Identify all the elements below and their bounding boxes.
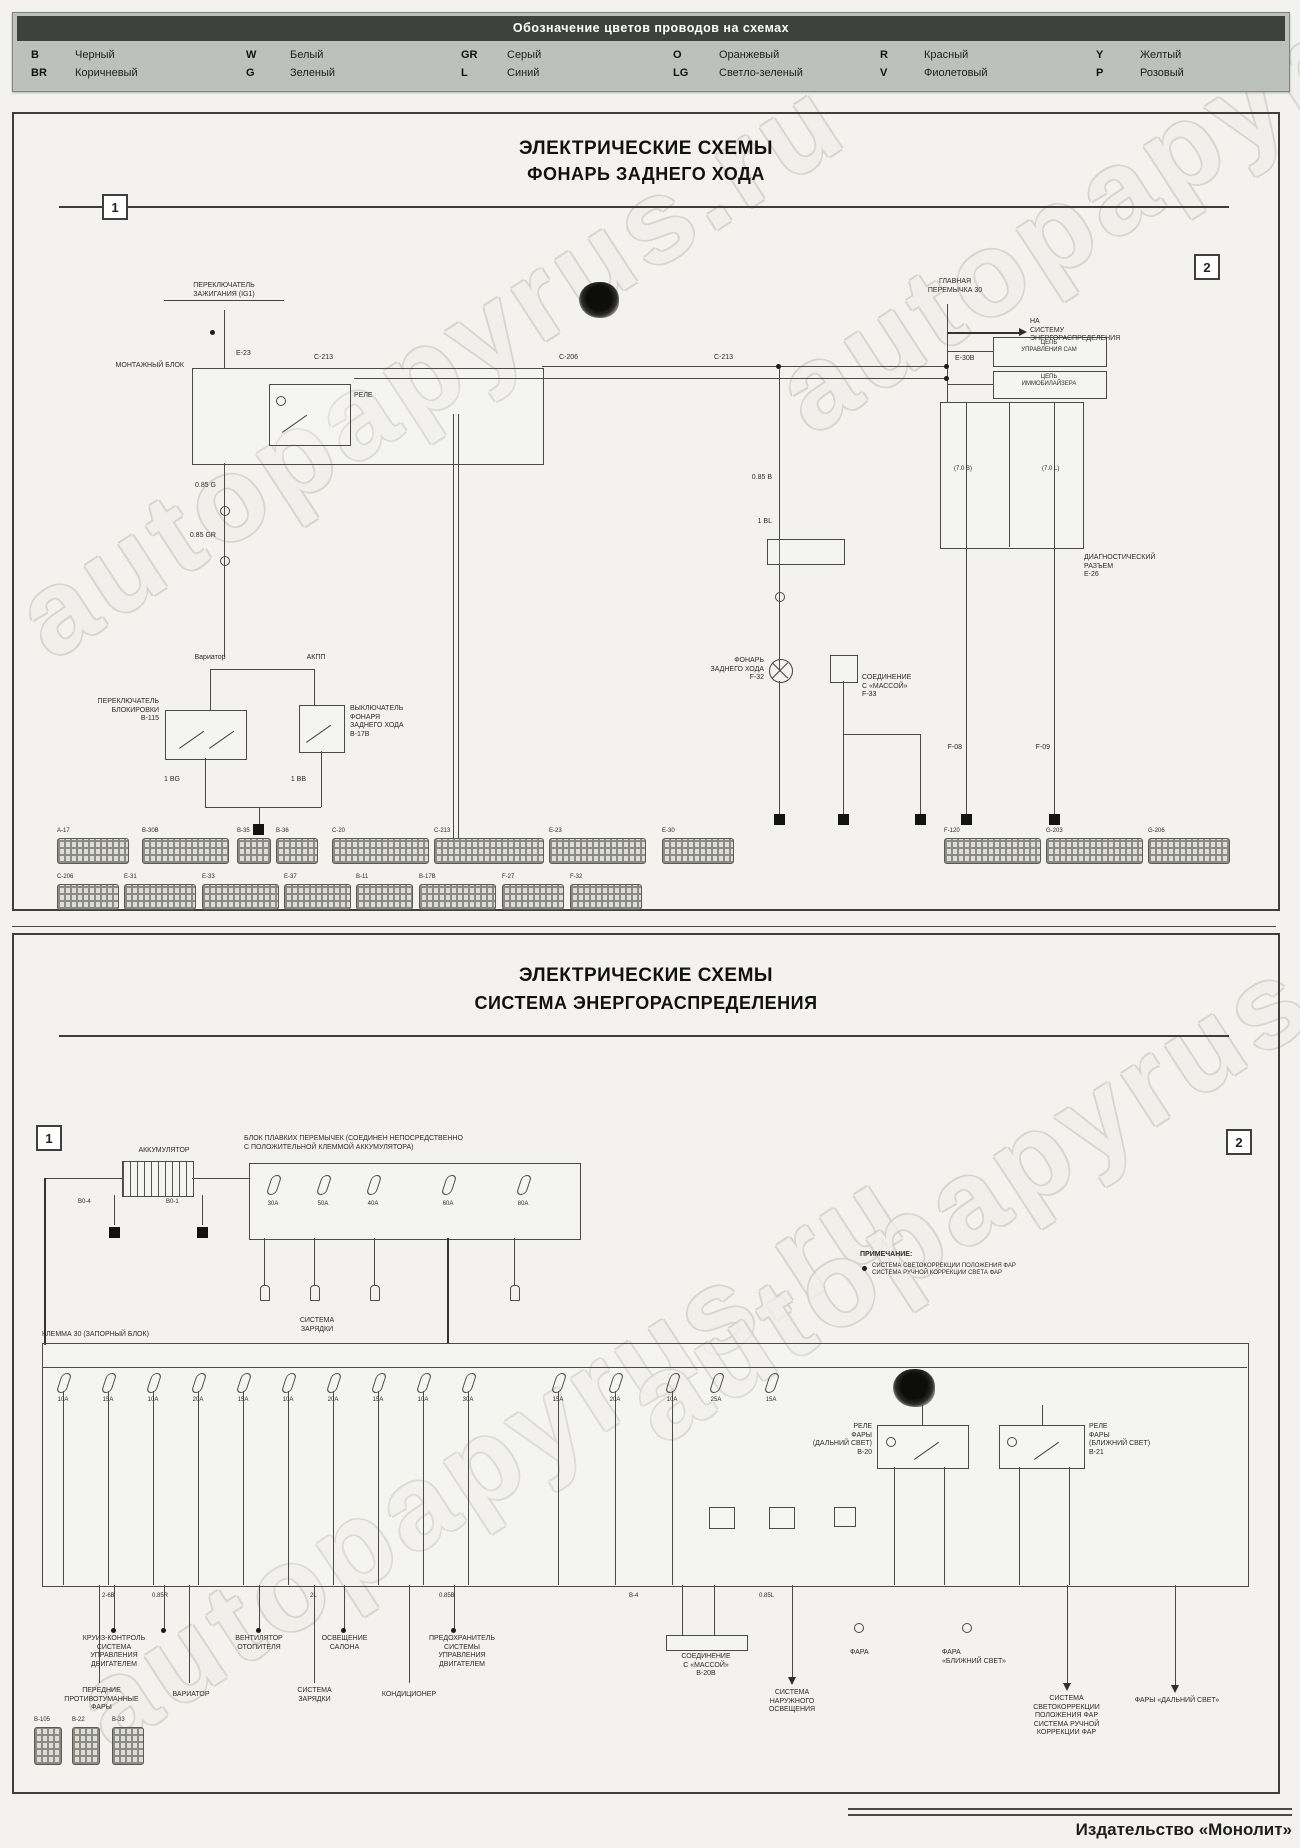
legend-title: Обозначение цветов проводов на схемах — [17, 16, 1285, 41]
wire-line — [409, 1585, 410, 1683]
wire-line — [114, 1585, 115, 1630]
connector-id: E-31 — [124, 874, 137, 881]
wire-line — [259, 807, 260, 824]
dest-label: ОСВЕЩЕНИЕ САЛОНА — [302, 1635, 387, 1652]
wire-code: 1 BG — [140, 776, 180, 785]
fuse-amp: 20A — [319, 1397, 347, 1404]
arrow-down-icon — [1171, 1685, 1179, 1693]
wire-code: (7.0 L) — [1042, 466, 1059, 473]
title-rule — [59, 1035, 1229, 1037]
fuse-amp: 15A — [757, 1397, 785, 1404]
wire-line — [1069, 1467, 1070, 1585]
divider-rule — [12, 926, 1276, 927]
connector-id: B-33 — [112, 1717, 125, 1724]
legend-code: BR — [31, 67, 47, 79]
connector-id: B-11 — [356, 874, 368, 881]
connector-pinout — [112, 1727, 144, 1765]
junction-dot — [451, 1628, 456, 1633]
junction-dot — [210, 330, 215, 335]
feeder-line — [453, 414, 454, 838]
legend-name: Синий — [507, 67, 539, 79]
wire-line — [314, 1238, 315, 1285]
wire-line — [779, 366, 780, 670]
wire-line — [1054, 547, 1055, 814]
legend-code: P — [1096, 67, 1103, 79]
connector-pinout — [1148, 838, 1230, 864]
correction-system-label: СИСТЕМА СВЕТОКОРРЕКЦИИ ПОЛОЖЕНИЯ ФАР СИС… — [1009, 1695, 1124, 1738]
connector-id: C-206 — [57, 874, 73, 881]
wire-line — [224, 310, 225, 368]
junction-dot — [944, 376, 949, 381]
legend-code: V — [880, 67, 887, 79]
connector-code: E-30B — [955, 355, 974, 364]
inline-connector — [220, 506, 230, 516]
connector-pinout — [57, 884, 119, 910]
wire-code: B0-4 — [78, 1199, 91, 1206]
fuse-amp: 15A — [544, 1397, 572, 1404]
connector-id: C-20 — [332, 828, 345, 835]
connector-pinout — [356, 884, 413, 910]
legend-name: Серый — [507, 49, 541, 61]
ground-square — [253, 824, 264, 835]
connector-pinout — [662, 838, 734, 864]
publisher-credit: Издательство «Монолит» — [1076, 1820, 1292, 1840]
reverse-lamp-label: ФОНАРЬ ЗАДНЕГО ХОДА F-32 — [679, 657, 764, 683]
scan-stain — [893, 1369, 935, 1407]
transmission-variant-label: Вариатор — [170, 654, 250, 663]
lock-switch-label: ПЕРЕКЛЮЧАТЕЛЬ БЛОКИРОВКИ B-115 — [54, 698, 159, 724]
fuse-amp: 10A — [139, 1397, 167, 1404]
legend-code: G — [246, 67, 255, 79]
legend-code: L — [461, 67, 468, 79]
relay-coil — [1007, 1437, 1017, 1447]
fusible-link-icon — [370, 1285, 380, 1301]
dest-label: КРУИЗ-КОНТРОЛЬ СИСТЕМА УПРАВЛЕНИЯ ДВИГАТ… — [69, 1635, 159, 1669]
connector-id: B-35 — [237, 828, 250, 835]
wire-line — [198, 1391, 199, 1585]
diagnostic-connector-label: ДИАГНОСТИЧЕСКИЙ РАЗЪЕМ E-26 — [1084, 554, 1199, 580]
inline-component-box — [769, 1507, 795, 1529]
connector-id: B-30B — [142, 828, 159, 835]
inline-component-box — [834, 1507, 856, 1527]
connector-pinout — [142, 838, 229, 864]
sheet-marker-2: 2 — [1194, 254, 1220, 280]
fuse-amp: 80A — [508, 1201, 538, 1208]
wire-code: 1 BB — [266, 776, 306, 785]
dest-label: ВЕНТИЛЯТОР ОТОПИТЕЛЯ — [219, 1635, 299, 1652]
ground-square — [197, 1227, 208, 1238]
footer-rule — [848, 1808, 1292, 1816]
connector-code: C-206 — [559, 354, 578, 363]
wire-line — [189, 1585, 190, 1683]
fuse-amp: 30A — [454, 1397, 482, 1404]
ground-joint-label: СОЕДИНЕНИЕ С «МАССОЙ» B-20B — [666, 1653, 746, 1679]
wire-line — [314, 669, 315, 705]
fusible-link-header: БЛОК ПЛАВКИХ ПЕРЕМЫЧЕК (СОЕДИНЕН НЕПОСРЕ… — [244, 1135, 554, 1152]
wire-code: 1 BL — [734, 518, 772, 527]
inline-connector — [220, 556, 230, 566]
connector-id: C-213 — [434, 828, 450, 835]
connector-id: E-37 — [284, 874, 297, 881]
dest-label: КОНДИЦИОНЕР — [364, 1691, 454, 1700]
connector-pinout — [944, 838, 1041, 864]
sheet-marker-2: 2 — [1226, 1129, 1252, 1155]
wire-line — [468, 1391, 469, 1585]
connector-pinout — [72, 1727, 100, 1765]
fuse-amp: 10A — [274, 1397, 302, 1404]
wire-line — [344, 1585, 345, 1630]
wire-line — [333, 1391, 334, 1585]
control-circuit-label: ЦЕПЬ УПРАВЛЕНИЯ САМ — [995, 340, 1103, 355]
ground-square — [109, 1227, 120, 1238]
ground-joint-box — [666, 1635, 748, 1651]
connector-pinout — [237, 838, 271, 864]
connector-id: A-17 — [57, 828, 70, 835]
wire-line — [164, 1585, 165, 1630]
dest-label: ВАРИАТОР — [156, 1691, 226, 1700]
fuse-amp: 20A — [184, 1397, 212, 1404]
connector-pinout — [57, 838, 129, 864]
high-beams-label: ФАРЫ «ДАЛЬНИЙ СВЕТ» — [1112, 1697, 1242, 1706]
wire-line — [1019, 1467, 1020, 1585]
fuse-amp: 10A — [49, 1397, 77, 1404]
connector-code: E-23 — [236, 350, 251, 359]
wire-line — [672, 1391, 673, 1585]
wire-line — [192, 1178, 249, 1179]
lamp-connector — [962, 1623, 972, 1633]
arrow-right-icon — [1019, 328, 1027, 336]
connector-pinout — [570, 884, 642, 910]
arrow-down-icon — [1063, 1683, 1071, 1691]
wire-code: B0-1 — [166, 1199, 179, 1206]
wire-line — [615, 1391, 616, 1585]
wire-code: 0.85 GR — [170, 532, 216, 541]
connector-pinout — [549, 838, 646, 864]
sheet-marker-1: 1 — [102, 194, 128, 220]
fuse-amp: 40A — [358, 1201, 388, 1208]
wire-line — [454, 1585, 455, 1630]
fusible-link-icon — [510, 1285, 520, 1301]
wire-line — [947, 351, 993, 352]
arrow-down-icon — [788, 1677, 796, 1685]
wire-line — [202, 1195, 203, 1225]
note-text: СИСТЕМА СВЕТОКОРРЕКЦИИ ПОЛОЖЕНИЯ ФАР СИС… — [872, 1263, 1092, 1278]
relay-coil — [276, 396, 286, 406]
ground-square — [915, 814, 926, 825]
wire-line — [682, 1585, 683, 1635]
relay-label: РЕЛЕ — [354, 392, 373, 401]
wire-line — [558, 1391, 559, 1585]
wire-line — [1009, 402, 1010, 547]
connector-code: C-213 — [314, 354, 333, 363]
connector-pinout — [276, 838, 318, 864]
scan-stain — [579, 282, 619, 318]
panel1-subtitle: ФОНАРЬ ЗАДНЕГО ХОДА — [14, 164, 1278, 185]
relay-coil — [886, 1437, 896, 1447]
connector-id: G-203 — [1046, 828, 1063, 835]
fuse-amp: 15A — [364, 1397, 392, 1404]
title-rule — [59, 206, 1229, 208]
fuse-amp: 10A — [658, 1397, 686, 1404]
legend-code: B — [31, 49, 39, 61]
reverse-switch-box — [299, 705, 345, 753]
wire-color-legend: Обозначение цветов проводов на схемах B … — [12, 12, 1290, 92]
wire-line — [1067, 1585, 1068, 1683]
dest-label: ПЕРЕДНИЕ ПРОТИВОТУМАННЫЕ ФАРЫ — [44, 1687, 159, 1713]
wire-line — [920, 734, 921, 814]
connector-pinout — [434, 838, 544, 864]
feeder-line — [458, 414, 459, 838]
charging-system-label: СИСТЕМА ЗАРЯДКИ — [282, 1317, 352, 1334]
diagnostic-block-box — [940, 402, 1084, 549]
wire-code: 0.85L — [759, 1593, 774, 1600]
connector-id: B-36 — [276, 828, 289, 835]
wire-line — [1175, 1585, 1176, 1685]
wire-line — [114, 1195, 115, 1225]
reverse-switch-label: ВЫКЛЮЧАТЕЛЬ ФОНАРЯ ЗАДНЕГО ХОДА B-17B — [350, 705, 440, 739]
ground-join-label: СОЕДИНЕНИЕ С «МАССОЙ» F-33 — [862, 674, 942, 700]
wire-line — [894, 1467, 895, 1585]
branch-line — [210, 669, 314, 670]
legend-name: Светло-зеленый — [719, 67, 803, 79]
relay-high-label: РЕЛЕ ФАРЫ (ДАЛЬНИЙ СВЕТ) B-20 — [792, 1423, 872, 1457]
wire-line — [514, 1238, 515, 1285]
fusible-link-icon — [260, 1285, 270, 1301]
bus-line — [354, 378, 947, 379]
wire-line — [1054, 402, 1055, 547]
inline-component-box — [767, 539, 845, 565]
inline-connector — [775, 592, 785, 602]
wire-line — [843, 734, 920, 735]
wire-line — [966, 547, 967, 814]
headlamp-label: ФАРА «БЛИЖНИЙ СВЕТ» — [942, 1649, 1032, 1666]
wire-code: 2-6B — [102, 1593, 115, 1600]
exterior-light-label: СИСТЕМА НАРУЖНОГО ОСВЕЩЕНИЯ — [742, 1689, 842, 1715]
connector-pinout — [34, 1727, 62, 1765]
wire-line — [922, 1405, 923, 1425]
connector-code: C-213 — [714, 354, 733, 363]
battery-box — [122, 1161, 194, 1197]
connector-id: E-33 — [202, 874, 215, 881]
connector-id: E-30 — [662, 828, 675, 835]
panel2-subtitle: СИСТЕМА ЭНЕРГОРАСПРЕДЕЛЕНИЯ — [14, 993, 1278, 1014]
legend-code: GR — [461, 49, 478, 61]
feeder-line — [447, 1238, 449, 1343]
wire-line — [947, 304, 948, 402]
junction-dot — [256, 1628, 261, 1633]
fuse-amp: 30A — [258, 1201, 288, 1208]
ground-join-box — [830, 655, 858, 683]
wire-line — [966, 402, 967, 547]
relay-box — [269, 384, 351, 446]
connector-pinout — [284, 884, 351, 910]
relay-high-box — [877, 1425, 969, 1469]
mount-block-label: МОНТАЖНЫЙ БЛОК — [74, 362, 184, 371]
legend-name: Красный — [924, 49, 968, 61]
junction-dot — [944, 364, 949, 369]
wire-code: 2L — [310, 1593, 317, 1600]
legend-name: Оранжевый — [719, 49, 779, 61]
headlamp-label: ФАРА — [850, 1649, 869, 1658]
connector-pinout — [202, 884, 279, 910]
sheet-marker-1: 1 — [36, 1125, 62, 1151]
wire-line — [423, 1391, 424, 1585]
wire-line — [944, 1467, 945, 1585]
ground-square — [838, 814, 849, 825]
wire-code: B-4 — [629, 1593, 638, 1600]
legend-code: O — [673, 49, 682, 61]
bus-line — [42, 1367, 1247, 1368]
connector-id: F-120 — [944, 828, 960, 835]
legend-name: Желтый — [1140, 49, 1181, 61]
mount-block-box — [192, 368, 544, 465]
panel1-title: ЭЛЕКТРИЧЕСКИЕ СХЕМЫ — [14, 138, 1278, 160]
ground-square — [961, 814, 972, 825]
connector-pinout — [419, 884, 496, 910]
junction-dot — [341, 1628, 346, 1633]
wire-line — [947, 384, 993, 385]
junction-dot — [111, 1628, 116, 1633]
ground-square — [1049, 814, 1060, 825]
wire-line — [243, 1391, 244, 1585]
dest-label: СИСТЕМА ЗАРЯДКИ — [282, 1687, 347, 1704]
wire-code: 0.85 G — [174, 482, 216, 491]
reverse-lamp-icon — [769, 659, 793, 683]
panel-power-distribution: ЭЛЕКТРИЧЕСКИЕ СХЕМЫ СИСТЕМА ЭНЕРГОРАСПРЕ… — [12, 933, 1280, 1794]
note-bullet — [862, 1266, 867, 1271]
wire-line — [205, 807, 321, 808]
terminal30-label: КЛЕММА 30 (ЗАПОРНЫЙ БЛОК) — [42, 1331, 149, 1340]
wire-line — [288, 1391, 289, 1585]
inline-component-box — [709, 1507, 735, 1529]
connector-id: G-206 — [1148, 828, 1165, 835]
legend-name: Белый — [290, 49, 323, 61]
fuse-amp: 15A — [94, 1397, 122, 1404]
wire-line — [714, 1585, 715, 1635]
wire-line — [792, 1585, 793, 1677]
wire-line — [205, 758, 206, 807]
fuse-amp: 15A — [229, 1397, 257, 1404]
connector-pinout — [1046, 838, 1143, 864]
wire-line — [44, 1178, 122, 1179]
fuse-amp: 60A — [433, 1201, 463, 1208]
fuse-amp: 10A — [409, 1397, 437, 1404]
ignition-switch-label: ПЕРЕКЛЮЧАТЕЛЬ ЗАЖИГАНИЯ (IG1) — [164, 282, 284, 301]
relay-low-box — [999, 1425, 1085, 1469]
wire-line — [264, 1238, 265, 1285]
lamp-connector — [854, 1623, 864, 1633]
legend-code: Y — [1096, 49, 1103, 61]
wire-code: 0.85B — [439, 1593, 455, 1600]
wire-line — [153, 1391, 154, 1585]
dest-label: ПРЕДОХРАНИТЕЛЬ СИСТЕМЫ УПРАВЛЕНИЯ ДВИГАТ… — [412, 1635, 512, 1669]
note-title: ПРИМЕЧАНИЕ: — [860, 1251, 912, 1260]
panel-reversing-lamp: ЭЛЕКТРИЧЕСКИЕ СХЕМЫ ФОНАРЬ ЗАДНЕГО ХОДА … — [12, 112, 1280, 911]
ground-code: F-08 — [930, 744, 962, 753]
legend-name: Фиолетовый — [924, 67, 987, 79]
wire-code: 0.85R — [152, 1593, 168, 1600]
junction-dot — [161, 1628, 166, 1633]
transmission-variant-label: АКПП — [286, 654, 346, 663]
connector-id: E-23 — [549, 828, 562, 835]
legend-name: Черный — [75, 49, 115, 61]
wire-code: (7.0 B) — [954, 466, 972, 473]
wire-line — [843, 681, 844, 814]
fuse-amp: 25A — [702, 1397, 730, 1404]
fuse-amp: 20A — [601, 1397, 629, 1404]
wire-line — [210, 669, 211, 710]
wire-line — [374, 1238, 375, 1285]
connector-id: F-32 — [570, 874, 582, 881]
ground-square — [774, 814, 785, 825]
connector-id: F-27 — [502, 874, 514, 881]
panel2-title: ЭЛЕКТРИЧЕСКИЕ СХЕМЫ — [14, 965, 1278, 987]
connector-id: B-17B — [419, 874, 436, 881]
immo-circuit-label: ЦЕПЬ ИММОБИЛАЙЗЕРА — [995, 374, 1103, 389]
junction-dot — [776, 364, 781, 369]
connector-id: B-105 — [34, 1717, 50, 1724]
feeder-line — [44, 1178, 46, 1345]
legend-code: W — [246, 49, 256, 61]
wire-line — [1042, 1405, 1043, 1425]
wire-line — [321, 751, 322, 807]
wire-line — [779, 681, 780, 814]
ground-code: F-09 — [1018, 744, 1050, 753]
legend-name: Коричневый — [75, 67, 138, 79]
wire-line — [378, 1391, 379, 1585]
fusible-link-icon — [310, 1285, 320, 1301]
legend-name: Розовый — [1140, 67, 1184, 79]
wire-line — [63, 1391, 64, 1585]
connector-id: B-22 — [72, 1717, 85, 1724]
connector-pinout — [124, 884, 196, 910]
connector-pinout — [502, 884, 564, 910]
relay-low-label: РЕЛЕ ФАРЫ (БЛИЖНИЙ СВЕТ) B-21 — [1089, 1423, 1174, 1457]
battery-label: АККУМУЛЯТОР — [109, 1147, 219, 1156]
wire-line — [108, 1391, 109, 1585]
legend-code: R — [880, 49, 888, 61]
wire-code: 0.85 B — [726, 474, 772, 483]
wire-line — [259, 1585, 260, 1630]
connector-pinout — [332, 838, 429, 864]
scanned-wiring-diagram-page: autopapyrus.ru autopapyrus.ru autopapyru… — [0, 0, 1300, 1848]
branch-arrow-line — [947, 332, 1019, 334]
bus-line — [542, 366, 947, 367]
legend-code: LG — [673, 67, 688, 79]
lock-switch-box — [165, 710, 247, 760]
fuse-amp: 50A — [308, 1201, 338, 1208]
legend-name: Зеленый — [290, 67, 335, 79]
main-link-label: ГЛАВНАЯ ПЕРЕМЫЧКА 30 — [900, 278, 1010, 295]
